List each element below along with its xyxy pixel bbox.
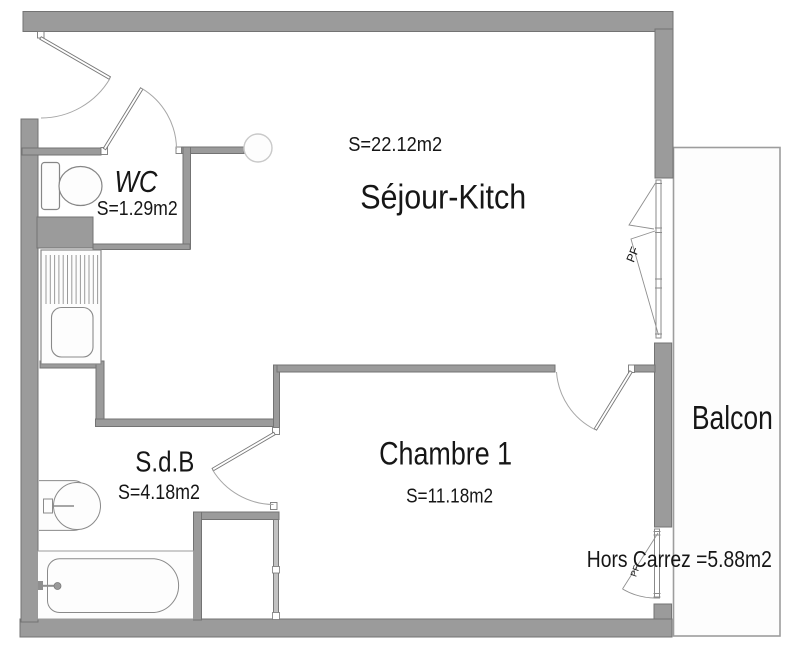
svg-text:Hors Carrez =5.88m2: Hors Carrez =5.88m2 — [587, 546, 772, 572]
svg-text:S=11.18m2: S=11.18m2 — [406, 485, 493, 508]
svg-text:S=22.12m2: S=22.12m2 — [348, 134, 442, 156]
svg-text:Balcon: Balcon — [692, 399, 773, 436]
svg-text:S=1.29m2: S=1.29m2 — [97, 198, 178, 220]
svg-text:S=4.18m2: S=4.18m2 — [118, 480, 200, 504]
svg-text:WC: WC — [115, 164, 159, 199]
svg-text:S.d.B: S.d.B — [135, 447, 194, 479]
svg-text:Chambre 1: Chambre 1 — [379, 435, 512, 471]
svg-text:Séjour-Kitch: Séjour-Kitch — [360, 179, 526, 217]
